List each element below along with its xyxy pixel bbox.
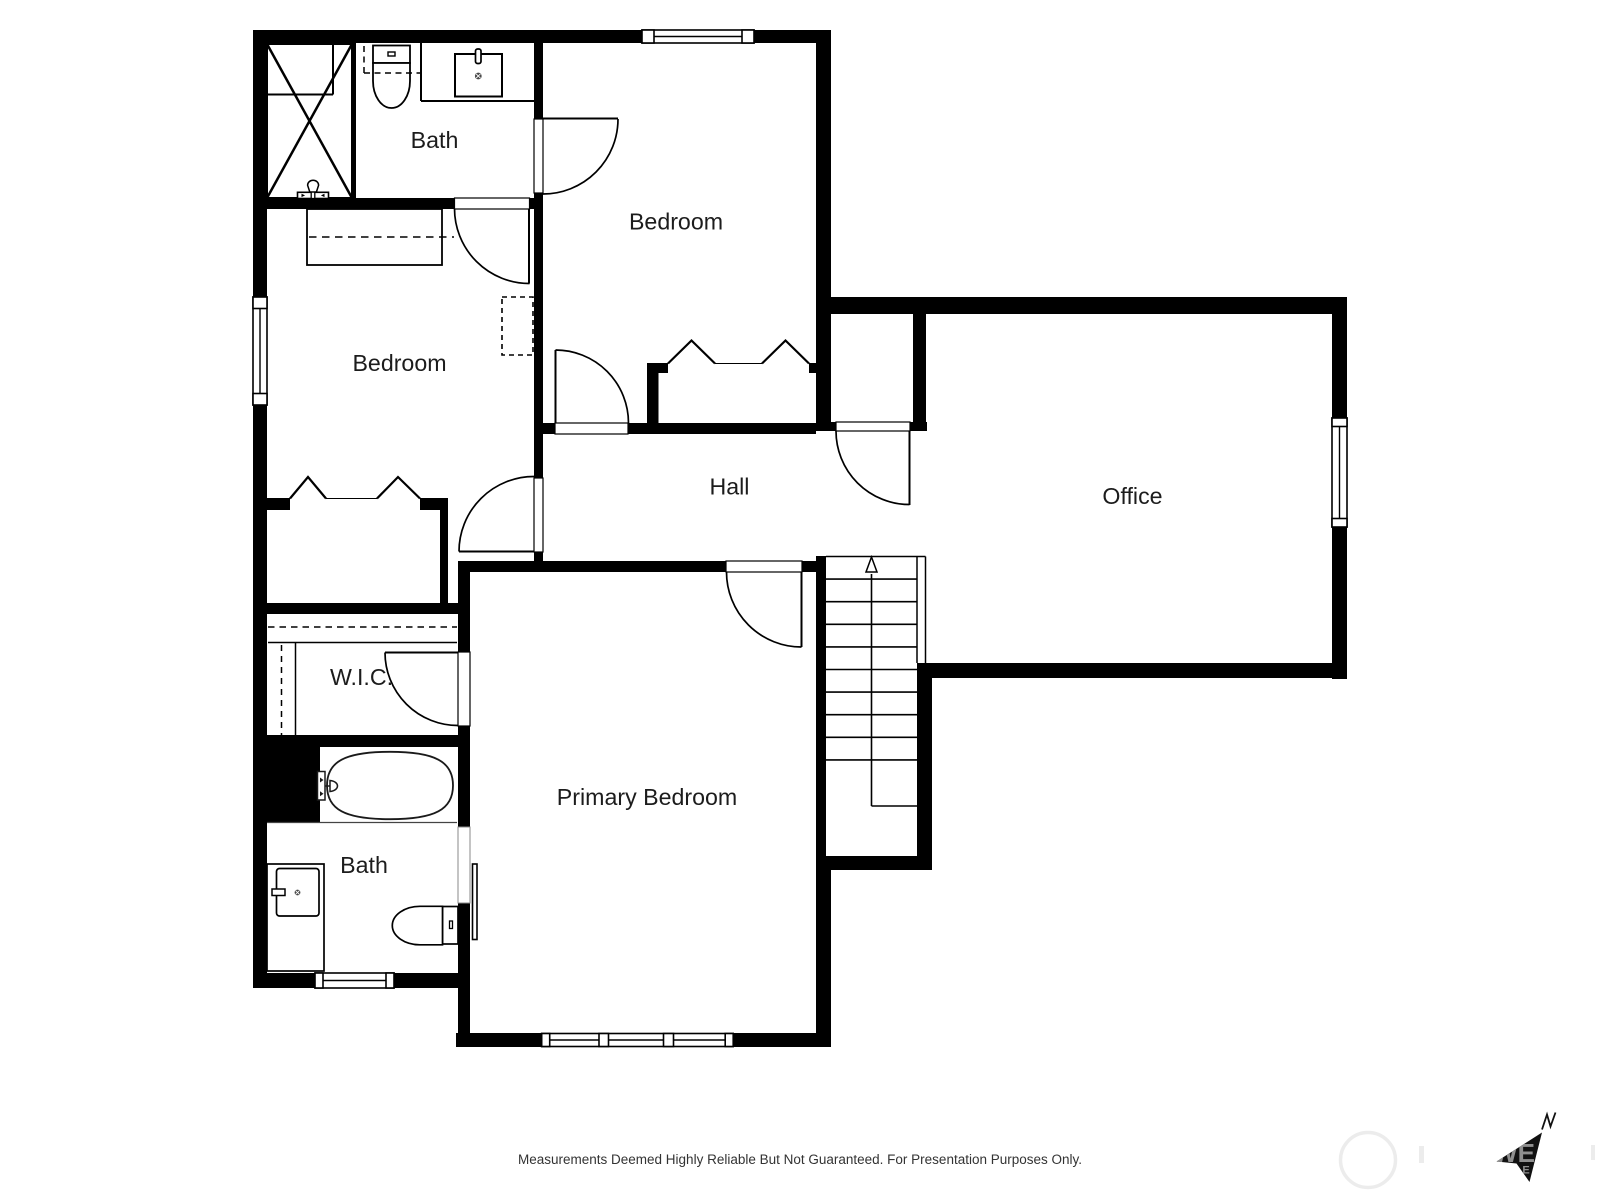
svg-text:Office: Office	[1102, 483, 1162, 509]
svg-text:Bedroom: Bedroom	[352, 350, 446, 376]
svg-text:Measurements Deemed Highly Rel: Measurements Deemed Highly Reliable But …	[518, 1152, 1082, 1167]
svg-text:Hall: Hall	[710, 474, 750, 500]
svg-text:Bath: Bath	[411, 127, 459, 153]
svg-text:W.I.C.: W.I.C.	[330, 664, 393, 690]
svg-text:Bath: Bath	[340, 852, 388, 878]
svg-text:Bedroom: Bedroom	[629, 209, 723, 235]
svg-text:Primary Bedroom: Primary Bedroom	[557, 784, 737, 810]
